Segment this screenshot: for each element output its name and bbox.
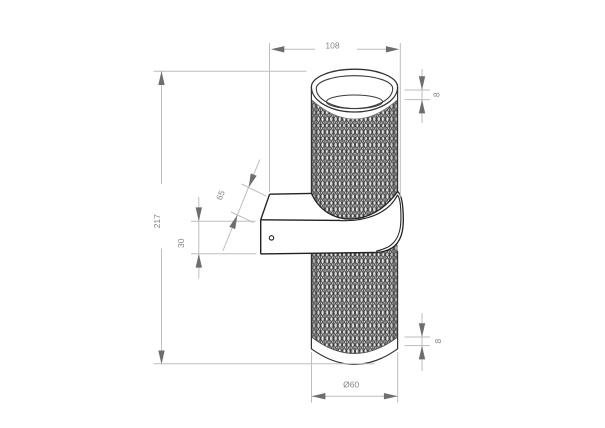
svg-text:30: 30 (176, 238, 186, 248)
svg-text:108: 108 (325, 40, 339, 50)
svg-text:8: 8 (431, 92, 441, 97)
svg-text:8: 8 (433, 339, 443, 344)
svg-text:217: 217 (152, 214, 162, 228)
svg-text:65: 65 (214, 189, 227, 202)
svg-text:Ø60: Ø60 (343, 379, 359, 389)
